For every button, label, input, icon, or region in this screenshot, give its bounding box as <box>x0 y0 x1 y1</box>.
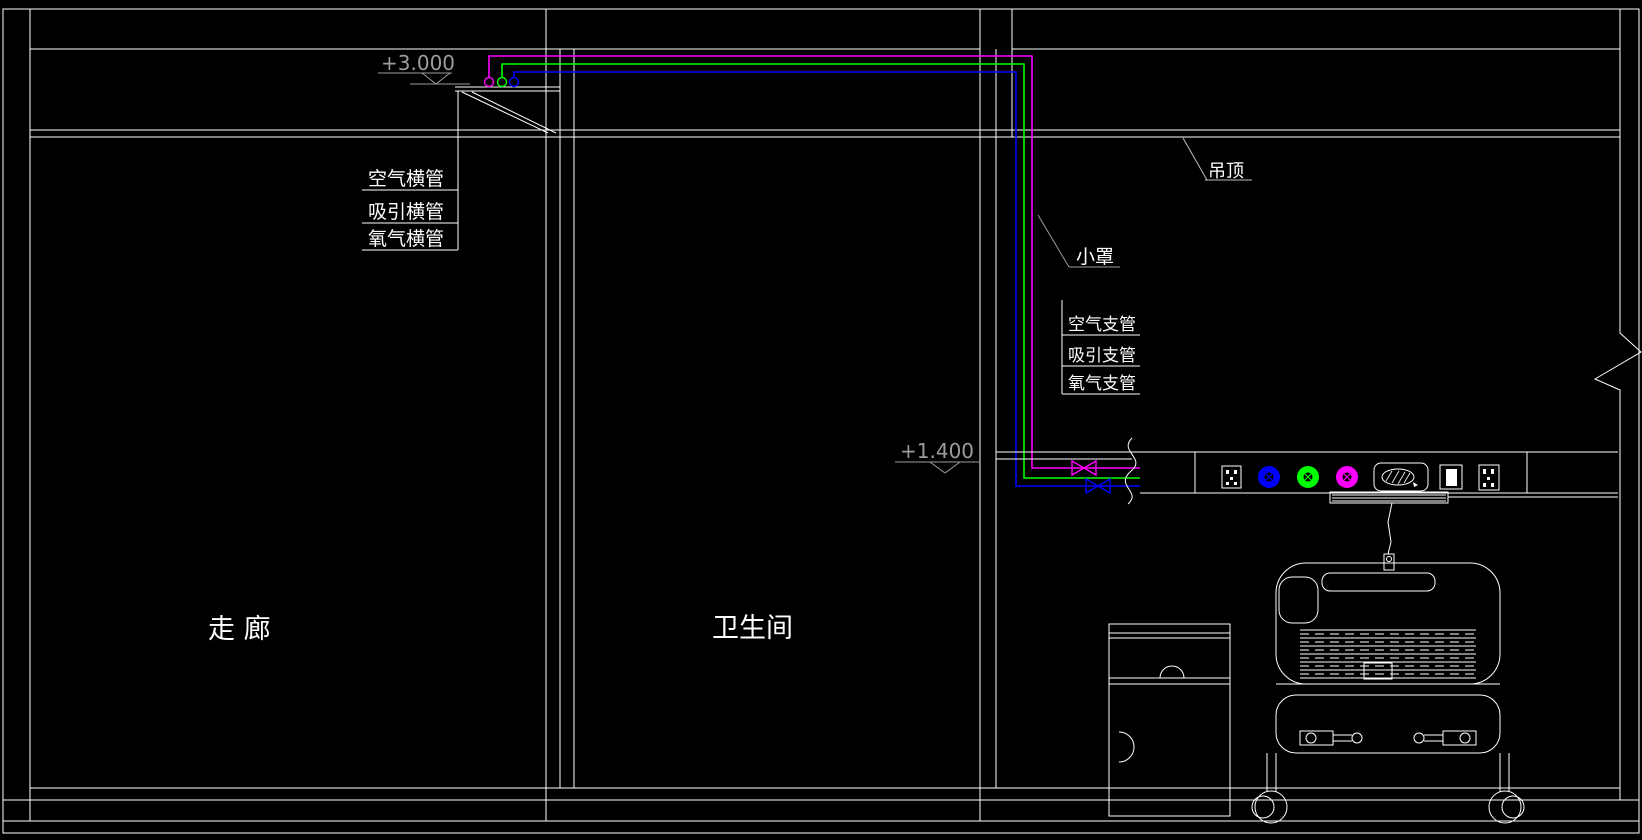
door-handle <box>1119 732 1134 762</box>
gas-outlet-magenta-icon <box>1336 466 1358 488</box>
pipe-end-green <box>498 78 507 87</box>
pipe-green <box>502 64 1140 478</box>
gas-outlet-blue-icon <box>1258 466 1280 488</box>
elevation-value: +3.000 <box>381 51 455 75</box>
pipe-label-air-branch: 空气支管 <box>1068 315 1136 335</box>
building-structure <box>30 9 1641 821</box>
elevation-marker-3000: +3.000 <box>378 51 470 84</box>
break-squiggle <box>1125 438 1136 504</box>
pipe-label-air-main: 空气横管 <box>368 168 444 190</box>
bedside-cabinet <box>1109 624 1230 816</box>
pipe-bracket <box>455 87 560 250</box>
pipe-blue <box>514 72 1140 486</box>
hood-label-text: 小罩 <box>1076 246 1114 268</box>
pipe-magenta <box>489 56 1140 468</box>
pipe-end-magenta <box>485 78 494 87</box>
nurse-call-pendant <box>1384 503 1394 570</box>
hospital-bed <box>1252 563 1524 823</box>
pipe-label-suction-main: 吸引横管 <box>368 201 444 223</box>
gas-outlet-green-icon <box>1297 466 1319 488</box>
gas-piping-elevation-drawing: +3.000 +1.400 空气横管 吸引横管 氧气横管 吊顶 小罩 空气支管 … <box>0 0 1642 840</box>
equipment-rail <box>1330 492 1448 503</box>
elevation-marker-1400: +1.400 <box>895 439 980 473</box>
pipe-label-oxygen-branch: 氧气支管 <box>1068 374 1136 394</box>
pipe-label-suction-branch: 吸引支管 <box>1068 346 1136 366</box>
drawing-border <box>3 9 1639 833</box>
room-label-bathroom: 卫生间 <box>712 613 793 644</box>
horizontal-pipe-labels: 空气横管 吸引横管 氧气横管 <box>362 168 458 250</box>
elevation-value: +1.400 <box>900 439 974 463</box>
pipe-end-blue <box>510 78 519 87</box>
branch-pipe-labels: 空气支管 吸引支管 氧气支管 <box>1062 300 1140 394</box>
ceiling-label: 吊顶 <box>1183 138 1252 182</box>
bed-lower-frame <box>1276 695 1500 753</box>
bed-crank-handles <box>1300 731 1476 745</box>
room-label-corridor: 走 廊 <box>208 614 271 645</box>
ceiling-label-text: 吊顶 <box>1208 161 1244 182</box>
break-line-symbol <box>1595 9 1641 800</box>
drawer-handle <box>1160 666 1184 678</box>
gas-pipes <box>485 56 1141 493</box>
cad-drawing-canvas: +3.000 +1.400 空气横管 吸引横管 氧气横管 吊顶 小罩 空气支管 … <box>0 0 1642 840</box>
hood-label: 小罩 <box>1038 215 1120 268</box>
pipe-label-oxygen-main: 氧气横管 <box>368 228 444 250</box>
mattress-hatch <box>1300 630 1476 678</box>
